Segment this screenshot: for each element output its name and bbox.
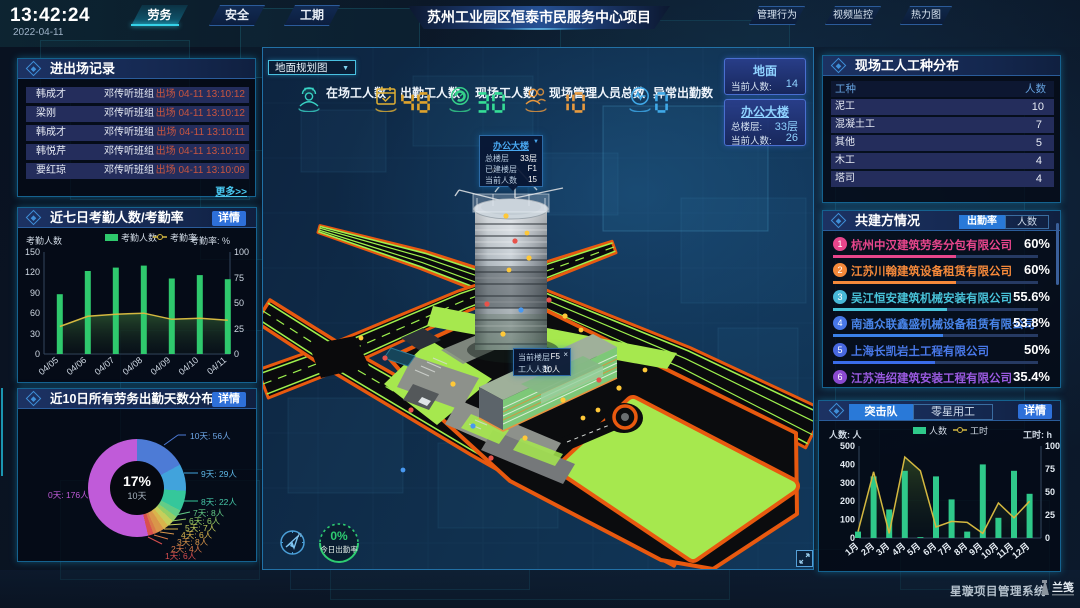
svg-text:5月: 5月: [905, 541, 922, 558]
svg-text:75: 75: [1045, 464, 1055, 474]
svg-text:04/10: 04/10: [177, 355, 201, 377]
svg-text:0: 0: [35, 349, 40, 359]
svg-text:400: 400: [840, 459, 855, 469]
svg-text:今日出勤率: 今日出勤率: [320, 544, 358, 554]
svg-text:工时: h: 工时: h: [1023, 429, 1052, 440]
svg-text:200: 200: [840, 496, 855, 506]
svg-text:04/11: 04/11: [205, 355, 228, 377]
svg-text:25: 25: [234, 324, 244, 334]
svg-text:04/06: 04/06: [65, 355, 89, 377]
svg-text:7月: 7月: [936, 541, 953, 558]
svg-text:0: 0: [1045, 533, 1050, 543]
svg-text:3月: 3月: [874, 541, 891, 558]
svg-text:04/05: 04/05: [37, 355, 61, 377]
svg-text:1月: 1月: [843, 541, 860, 558]
svg-text:04/07: 04/07: [93, 355, 117, 377]
svg-text:0: 0: [234, 349, 239, 359]
svg-text:90: 90: [30, 288, 40, 298]
svg-text:75: 75: [234, 273, 244, 283]
svg-text:100: 100: [234, 247, 249, 257]
svg-text:100: 100: [840, 515, 855, 525]
svg-text:人数: 人数: [929, 425, 947, 436]
svg-text:100: 100: [1045, 441, 1060, 451]
svg-text:考勤人数: 考勤人数: [121, 232, 157, 243]
svg-text:50: 50: [1045, 487, 1055, 497]
svg-text:04/09: 04/09: [149, 355, 173, 377]
svg-text:人数: 人: 人数: 人: [828, 429, 862, 440]
svg-text:兰笺: 兰笺: [1052, 580, 1074, 594]
svg-text:考勤人数: 考勤人数: [26, 235, 62, 246]
svg-text:120: 120: [25, 267, 40, 277]
svg-text:25: 25: [1045, 510, 1055, 520]
svg-text:300: 300: [840, 478, 855, 488]
svg-text:500: 500: [840, 441, 855, 451]
svg-text:30: 30: [30, 329, 40, 339]
svg-text:工时: 工时: [970, 425, 988, 436]
svg-text:04/08: 04/08: [121, 355, 145, 377]
svg-text:0%: 0%: [330, 529, 348, 543]
svg-text:50: 50: [234, 298, 244, 308]
svg-text:N: N: [298, 533, 302, 539]
svg-text:150: 150: [25, 247, 40, 257]
svg-text:60: 60: [30, 308, 40, 318]
svg-text:12月: 12月: [1010, 541, 1031, 561]
svg-text:考勤率: 考勤率: [170, 232, 197, 243]
